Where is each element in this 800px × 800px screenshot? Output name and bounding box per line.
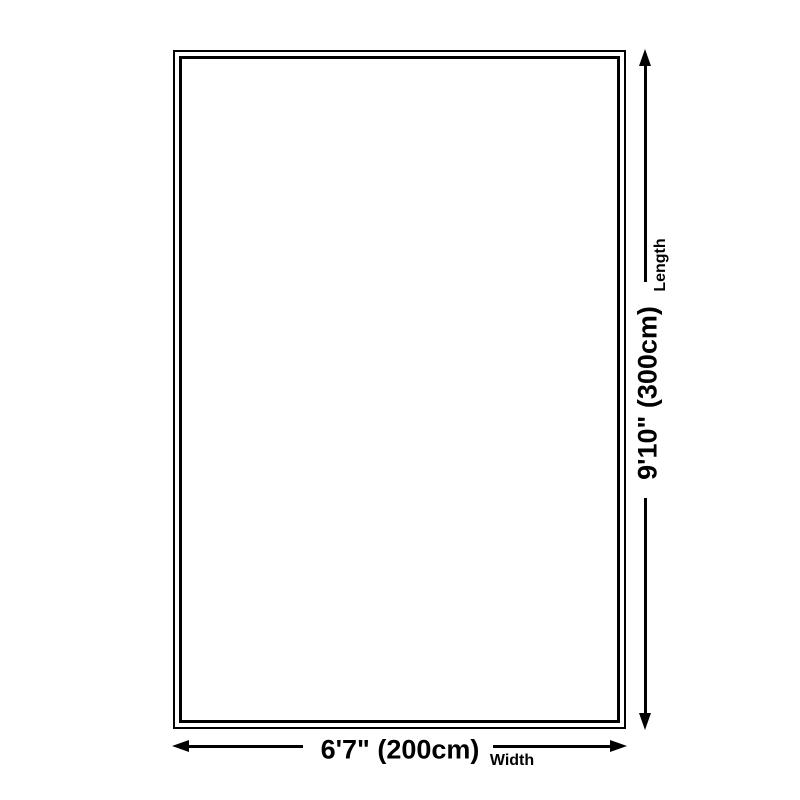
length-arrow-line-bottom [644, 498, 647, 716]
width-arrow-line-right [493, 745, 614, 748]
length-value-label: 9'10" (300cm) [635, 306, 662, 480]
width-axis-label: Width [490, 753, 534, 769]
rug-outline-inner [179, 56, 620, 723]
arrow-right-icon [610, 740, 627, 752]
length-arrow-line-top [644, 62, 647, 282]
rug-outline-outer [173, 50, 626, 729]
length-axis-label: Length [653, 238, 669, 291]
width-arrow-line-left [185, 745, 303, 748]
product-dimensions-diagram: 9'10" (300cm) Length 6'7" (200cm) Width [0, 0, 800, 800]
width-value-label: 6'7" (200cm) [321, 737, 480, 764]
arrow-down-icon [639, 713, 651, 730]
